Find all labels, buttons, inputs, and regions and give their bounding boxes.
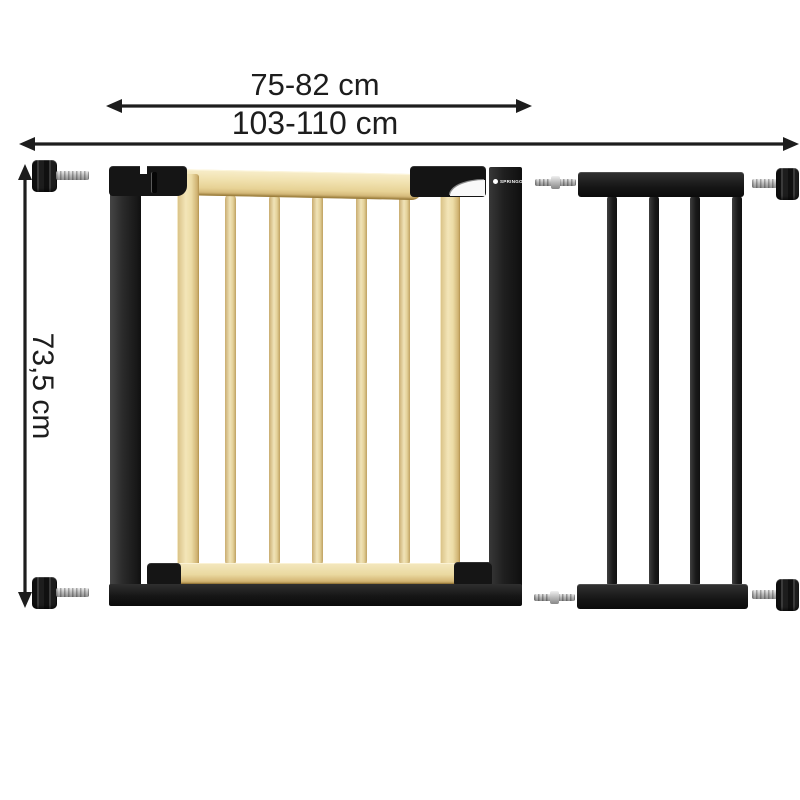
wooden-bar [269, 194, 280, 566]
extension-bar [732, 196, 742, 586]
brand-badge-label: SPRINGOS [500, 179, 526, 184]
extension-bar [607, 196, 617, 586]
knob-grip [776, 168, 799, 200]
pressure-knob-bottom-right [752, 579, 799, 611]
extension-bars [607, 196, 742, 586]
extension-bottom-rail [577, 584, 748, 609]
pressure-knob-top-right [752, 168, 799, 200]
gate-top-hinge-bracket [109, 166, 187, 196]
height-dimension-arrow [15, 162, 35, 610]
knob-threaded-shaft [56, 588, 89, 597]
wooden-bar [312, 194, 323, 566]
hinge-notch [140, 166, 147, 174]
total-width-dimension-arrow [17, 134, 800, 154]
knob-threaded-shaft [752, 179, 777, 188]
inner-width-dimension-arrow [104, 96, 534, 116]
gate-latch-housing [410, 166, 486, 197]
wooden-bar [356, 194, 367, 566]
gate-wood-left-stile [177, 174, 199, 584]
pressure-knob-bottom-left [32, 577, 89, 609]
extension-bar [690, 196, 700, 586]
connector-pin-top [535, 176, 576, 189]
hinge-slot [151, 172, 157, 193]
pin-collar [550, 591, 559, 604]
latch-release-detail [450, 180, 485, 196]
brand-logo-icon [493, 179, 498, 184]
gate-bars [225, 194, 410, 566]
gate-left-post [110, 168, 141, 592]
connector-pin-bottom [534, 591, 575, 604]
extension-bar [649, 196, 659, 586]
pressure-knob-top-left [32, 160, 89, 192]
knob-grip [32, 577, 57, 609]
gate-bottom-rail [109, 584, 522, 606]
gate-wood-bottom-rail [176, 563, 458, 584]
knob-threaded-shaft [752, 590, 777, 599]
knob-grip [776, 579, 799, 611]
brand-badge: SPRINGOS [493, 175, 520, 187]
safety-gate-dimension-diagram: 75-82 cm 103-110 cm 73,5 cm SPRINGOS [0, 0, 800, 800]
wooden-bar [225, 194, 236, 566]
pin-collar [551, 176, 560, 189]
gate-wood-right-stile [440, 192, 460, 584]
gate-right-post: SPRINGOS [489, 167, 522, 592]
knob-threaded-shaft [56, 171, 89, 180]
extension-top-rail [578, 172, 744, 197]
gate-wood-top-rail [176, 169, 422, 200]
wooden-bar [399, 194, 410, 566]
knob-grip [32, 160, 57, 192]
